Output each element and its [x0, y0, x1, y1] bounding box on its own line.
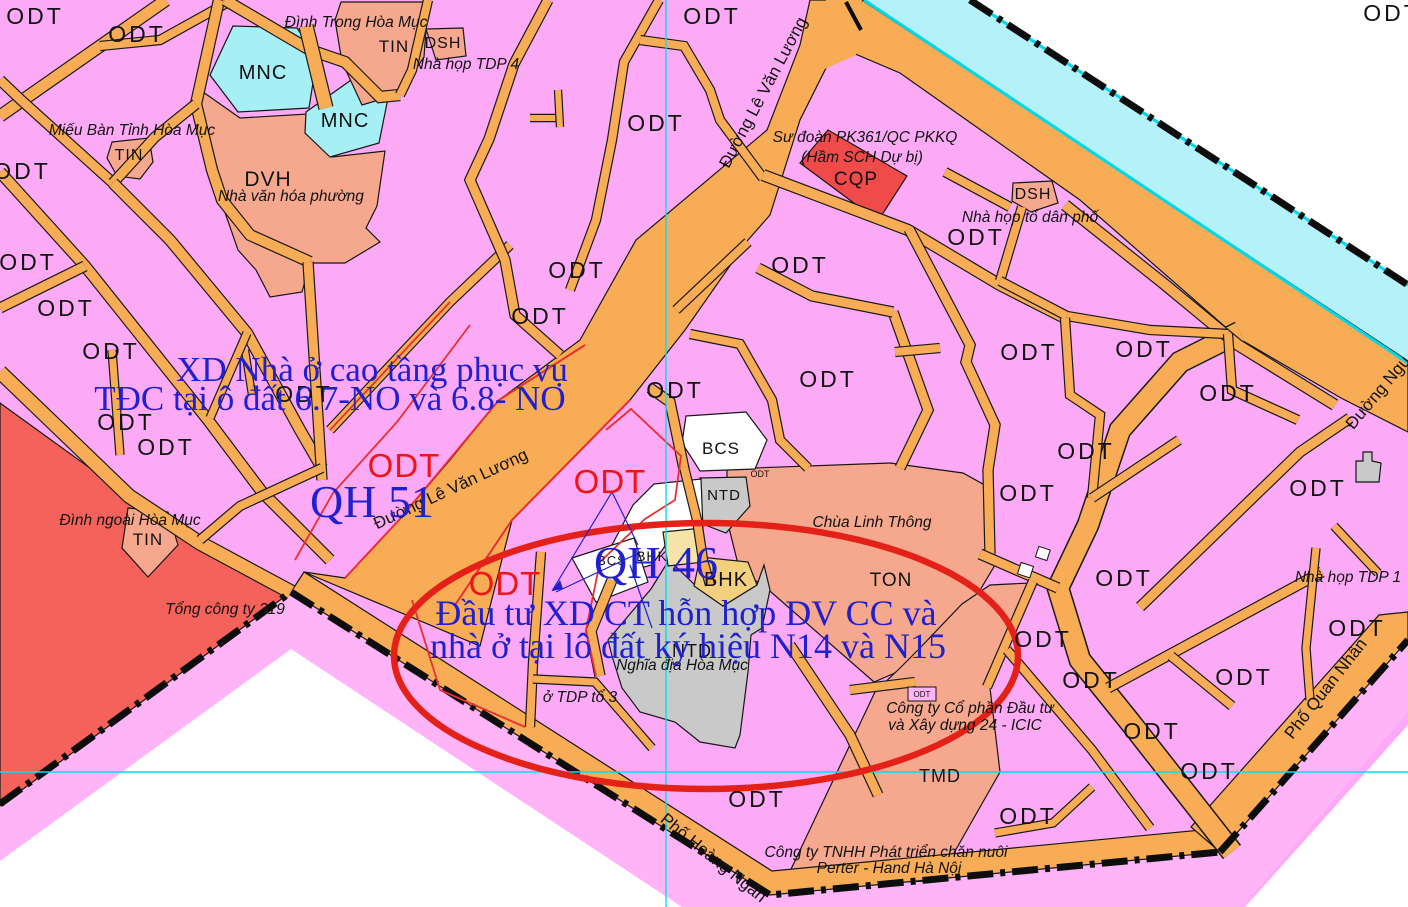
- svg-text:ODT: ODT: [751, 469, 771, 479]
- svg-text:ODT: ODT: [511, 303, 569, 329]
- svg-text:Miếu Bàn Tỉnh Hòa Mục: Miếu Bàn Tỉnh Hòa Mục: [49, 122, 216, 139]
- svg-text:TMD: TMD: [919, 766, 961, 786]
- svg-text:Công ty TNHH Phát triển chăn n: Công ty TNHH Phát triển chăn nuôi: [765, 844, 1009, 861]
- svg-text:Perter - Hand Hà Nội: Perter - Hand Hà Nội: [817, 860, 962, 877]
- svg-text:MNC: MNC: [239, 62, 288, 84]
- svg-text:ODT: ODT: [1363, 0, 1408, 26]
- svg-text:ODT: ODT: [0, 158, 51, 184]
- svg-text:Nhà họp TDP 4: Nhà họp TDP 4: [413, 56, 520, 73]
- svg-text:Đình ngoài Hòa Mục: Đình ngoài Hòa Mục: [59, 512, 201, 529]
- svg-text:ở TDP tổ 3: ở TDP tổ 3: [543, 689, 618, 706]
- svg-text:Sư đoàn PK361/QC PKKQ: Sư đoàn PK361/QC PKKQ: [773, 129, 958, 146]
- svg-text:ODT: ODT: [1095, 565, 1153, 591]
- svg-text:ODT: ODT: [1000, 339, 1058, 365]
- svg-text:ODT: ODT: [627, 110, 685, 136]
- svg-text:QH 46: QH 46: [594, 537, 718, 588]
- svg-text:ODT: ODT: [108, 21, 166, 47]
- svg-text:TIN: TIN: [379, 37, 409, 56]
- svg-text:Công ty Cổ phần Đầu tư: Công ty Cổ phần Đầu tư: [886, 700, 1055, 717]
- svg-text:Nhà họp tổ dân phố: Nhà họp tổ dân phố: [962, 209, 1100, 226]
- svg-text:ODT: ODT: [82, 338, 140, 364]
- svg-text:BCS: BCS: [702, 439, 740, 458]
- svg-text:Nhà văn hóa phường: Nhà văn hóa phường: [218, 188, 364, 205]
- svg-text:(Hầm SCH Dự bị): (Hầm SCH Dự bị): [801, 149, 923, 166]
- svg-text:ODT: ODT: [6, 3, 64, 29]
- svg-text:ODT: ODT: [548, 257, 606, 283]
- svg-text:ODT: ODT: [574, 463, 647, 500]
- svg-text:ODT: ODT: [37, 295, 95, 321]
- svg-text:ODT: ODT: [728, 786, 786, 812]
- svg-text:ODT: ODT: [646, 377, 704, 403]
- svg-text:Đình Trong Hòa Mục: Đình Trong Hòa Mục: [285, 14, 428, 31]
- svg-text:DSH: DSH: [425, 35, 462, 52]
- svg-text:ODT: ODT: [999, 803, 1057, 829]
- svg-text:NTD: NTD: [707, 487, 741, 504]
- svg-text:ODT: ODT: [1115, 336, 1173, 362]
- svg-text:ODT: ODT: [137, 434, 195, 460]
- svg-text:DSH: DSH: [1015, 186, 1052, 203]
- svg-text:ODT: ODT: [1062, 667, 1120, 693]
- svg-text:TON: TON: [870, 570, 913, 591]
- svg-text:ODT: ODT: [771, 252, 829, 278]
- svg-text:ODT: ODT: [914, 690, 931, 699]
- svg-text:MNC: MNC: [321, 110, 370, 132]
- svg-text:Chùa Linh Thông: Chùa Linh Thông: [813, 514, 932, 531]
- svg-text:ODT: ODT: [1289, 475, 1347, 501]
- svg-text:ODT: ODT: [1057, 438, 1115, 464]
- svg-text:Tổng công ty 319: Tổng công ty 319: [165, 601, 285, 618]
- svg-text:ODT: ODT: [368, 447, 441, 484]
- svg-text:ODT: ODT: [1199, 380, 1257, 406]
- svg-text:CQP: CQP: [834, 169, 878, 190]
- svg-text:ODT: ODT: [947, 224, 1005, 250]
- svg-text:ODT: ODT: [799, 366, 857, 392]
- svg-text:nhà ở tại lô đất ký hiệu N14 v: nhà ở tại lô đất ký hiệu N14 và N15: [430, 626, 946, 666]
- svg-text:ODT: ODT: [683, 3, 741, 29]
- svg-text:ODT: ODT: [469, 565, 542, 602]
- svg-text:TIN: TIN: [133, 530, 163, 549]
- svg-text:ODT: ODT: [1123, 718, 1181, 744]
- svg-text:Nhà họp TDP 1: Nhà họp TDP 1: [1295, 569, 1401, 586]
- svg-text:ODT: ODT: [1215, 664, 1273, 690]
- svg-text:ODT: ODT: [1180, 758, 1238, 784]
- svg-text:ODT: ODT: [999, 480, 1057, 506]
- svg-text:TĐC tại ô đất 6.7-NO và 6.8- N: TĐC tại ô đất 6.7-NO và 6.8- NO: [94, 379, 565, 418]
- svg-text:ODT: ODT: [0, 249, 57, 275]
- svg-text:ODT: ODT: [1014, 626, 1072, 652]
- svg-text:và Xây dựng 24 - ICIC: và Xây dựng 24 - ICIC: [888, 717, 1043, 734]
- svg-text:TIN: TIN: [115, 147, 144, 164]
